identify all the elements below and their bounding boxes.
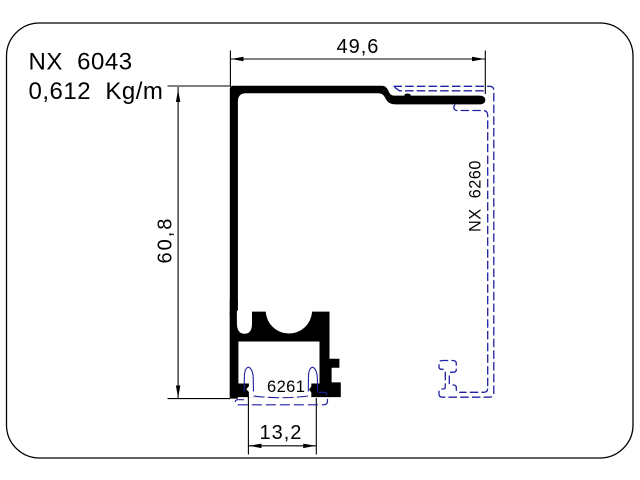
- svg-text:60,8: 60,8: [155, 217, 177, 264]
- svg-text:6261: 6261: [267, 378, 305, 396]
- svg-text:NX 6260: NX 6260: [467, 160, 485, 232]
- svg-text:NX 6043: NX 6043: [29, 49, 133, 76]
- svg-text:49,6: 49,6: [337, 36, 380, 58]
- svg-text:0,612 Kg/m: 0,612 Kg/m: [29, 78, 164, 105]
- svg-text:13,2: 13,2: [260, 422, 303, 444]
